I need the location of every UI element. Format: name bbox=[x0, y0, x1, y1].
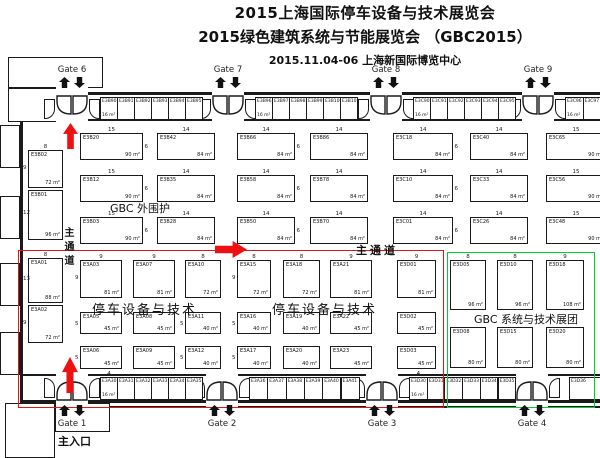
entry-exit-arrows-icon bbox=[369, 405, 395, 416]
booth-id: E3C33 bbox=[473, 177, 489, 183]
booth-id: E3B101 bbox=[342, 99, 359, 104]
label-0: GBC 外围护 bbox=[110, 200, 170, 216]
booth-E3C56: E3C5690 m²15 bbox=[546, 175, 600, 202]
booth-id: E3B90 bbox=[102, 99, 117, 104]
entry-exit-arrows-icon bbox=[519, 405, 545, 416]
booth-height-label: 6 bbox=[455, 186, 459, 192]
booth-width-label: 15 bbox=[547, 211, 600, 217]
red-arrow-right-icon bbox=[215, 241, 247, 258]
gate-label-gate-4: Gate 4 bbox=[518, 419, 546, 429]
booth-width-label: 15 bbox=[81, 169, 142, 175]
booth-id: E3B95 bbox=[187, 99, 202, 104]
booth-area: 72 m² bbox=[45, 180, 60, 186]
booth-E3B98: E3B98 bbox=[289, 97, 307, 120]
gate-doors-icon bbox=[369, 96, 403, 116]
title-line-2: 2015绿色建筑系统与节能展览会 （GBC2015） bbox=[130, 26, 600, 47]
gate-doors-icon bbox=[521, 96, 555, 116]
booth-height-label: 12 bbox=[23, 210, 30, 216]
booth-id: E3C10 bbox=[396, 177, 412, 183]
booth-E3C65: E3C6590 m²15 bbox=[546, 133, 600, 160]
title-line-1: 2015上海国际停车设备与技术展览会 bbox=[130, 2, 600, 23]
booth-E3B35: E3B3584 m²14 bbox=[157, 175, 215, 202]
booth-width-label: 14 bbox=[471, 127, 527, 133]
booth-E3B78: E3B7884 m²14 bbox=[310, 175, 368, 202]
entry-exit-arrows-icon bbox=[59, 405, 85, 416]
entry-exit-arrows-icon bbox=[215, 77, 241, 88]
booth-area: 84 m² bbox=[350, 152, 365, 158]
page-title: 2015上海国际停车设备与技术展览会 2015绿色建筑系统与节能展览会 （GBC… bbox=[130, 2, 600, 68]
booth-width-label: 14 bbox=[394, 127, 452, 133]
entry-exit-arrows-icon bbox=[59, 77, 85, 88]
booth-id: E3B86 bbox=[313, 135, 329, 141]
booth-E3B66: E3B6684 m²146 bbox=[237, 133, 295, 160]
booth-E3B92: E3B92 bbox=[134, 97, 152, 120]
booth-E3C93: E3C93 bbox=[464, 97, 482, 120]
booth-id: E3B28 bbox=[160, 219, 176, 225]
booth-width-label: 14 bbox=[394, 211, 452, 217]
booth-id: E3B58 bbox=[240, 177, 256, 183]
booth-area: 16 m² bbox=[415, 113, 428, 118]
booth-E3B97: E3B97 bbox=[272, 97, 290, 120]
entry-exit-arrows-icon bbox=[209, 405, 235, 416]
booth-id: E3B91 bbox=[119, 99, 134, 104]
booth-height-label: 6 bbox=[297, 144, 301, 150]
entry-exit-arrows-icon bbox=[209, 405, 235, 416]
booth-E3B99: E3B99 bbox=[306, 97, 324, 120]
booth-E3B02: E3B0272 m²89 bbox=[28, 150, 63, 188]
booth-width-label: 14 bbox=[238, 169, 294, 175]
booth-E3B95: E3B95 bbox=[185, 97, 203, 120]
booth-id: E3C40 bbox=[473, 135, 489, 141]
label-6: 主通道 bbox=[60, 227, 75, 269]
entry-exit-arrows-icon bbox=[373, 77, 399, 88]
service-room bbox=[5, 403, 55, 458]
booth-area: 84 m² bbox=[435, 152, 450, 158]
booth-E3B90: E3B9016 m² bbox=[100, 97, 118, 120]
booth-id: E3C01 bbox=[396, 219, 412, 225]
booth-E3C96: E3C9616 m² bbox=[565, 97, 584, 120]
booth-id: E3B98 bbox=[291, 99, 306, 104]
booth-id: E3B94 bbox=[170, 99, 185, 104]
booth-id: E3C18 bbox=[396, 135, 412, 141]
booth-E3B93: E3B93 bbox=[151, 97, 169, 120]
booth-width-label: 14 bbox=[158, 169, 214, 175]
booth-E3C92: E3C92 bbox=[447, 97, 465, 120]
booth-E3B28: E3B2884 m²14 bbox=[157, 217, 215, 244]
booth-E3C26: E3C2684 m²14 bbox=[470, 217, 528, 244]
entry-exit-arrows-icon bbox=[525, 77, 551, 88]
booth-width-label: 14 bbox=[238, 127, 294, 133]
booth-width-label: 8 bbox=[29, 144, 62, 150]
booth-E3B101: E3B101 bbox=[340, 97, 358, 120]
booth-id: E3C95 bbox=[500, 99, 515, 104]
booth-height-label: 6 bbox=[145, 228, 149, 234]
booth-id: E3B78 bbox=[313, 177, 329, 183]
booth-id: E3B42 bbox=[160, 135, 176, 141]
entry-exit-arrows-icon bbox=[519, 405, 545, 416]
booth-id: E3C91 bbox=[432, 99, 447, 104]
wall-segment bbox=[20, 92, 600, 95]
booth-width-label: 14 bbox=[311, 169, 367, 175]
booth-area: 90 m² bbox=[125, 152, 140, 158]
booth-area: 84 m² bbox=[277, 236, 292, 242]
booth-id: E3B93 bbox=[153, 99, 168, 104]
gate-doors-icon bbox=[365, 380, 399, 400]
label-4: 展团 bbox=[556, 311, 578, 327]
booth-area: 90 m² bbox=[588, 236, 600, 242]
booth-id: E3B02 bbox=[31, 152, 47, 158]
booth-area: 16 m² bbox=[567, 113, 580, 118]
booth-area: 84 m² bbox=[350, 194, 365, 200]
booth-width-label: 14 bbox=[311, 127, 367, 133]
gate-label-gate-2: Gate 2 bbox=[208, 419, 236, 429]
booth-height-label: 6 bbox=[145, 144, 149, 150]
service-room bbox=[8, 57, 103, 88]
booth-width-label: 14 bbox=[311, 211, 367, 217]
booth-id: E3B12 bbox=[83, 177, 99, 183]
booth-area: 84 m² bbox=[277, 194, 292, 200]
booth-area: 90 m² bbox=[588, 152, 600, 158]
booth-area: 84 m² bbox=[435, 194, 450, 200]
gate-doors-icon bbox=[207, 382, 237, 400]
entry-exit-arrows-icon bbox=[215, 77, 241, 88]
booth-E3B70: E3B7084 m²14 bbox=[310, 217, 368, 244]
booth-E3C97: E3C97 bbox=[583, 97, 600, 120]
booth-id: E3C96 bbox=[567, 99, 582, 104]
service-room bbox=[0, 125, 20, 168]
booth-E3C90: E3C9016 m² bbox=[413, 97, 431, 120]
booth-E3B100: E3B100 bbox=[323, 97, 341, 120]
booth-id: E3C92 bbox=[449, 99, 464, 104]
booth-E3B94: E3B94 bbox=[168, 97, 186, 120]
booth-E3B96: E3B9616 m² bbox=[255, 97, 273, 120]
entry-exit-arrows-icon bbox=[369, 405, 395, 416]
booth-area: 84 m² bbox=[435, 236, 450, 242]
booth-E3B01: E3B0196 m²12 bbox=[28, 190, 63, 240]
gate-doors-icon bbox=[211, 96, 245, 116]
booth-E3C40: E3C4084 m²14 bbox=[470, 133, 528, 160]
gate-doors-icon bbox=[517, 382, 547, 400]
booth-area: 84 m² bbox=[510, 194, 525, 200]
booth-area: 84 m² bbox=[510, 236, 525, 242]
service-room bbox=[0, 332, 20, 375]
booth-E3B91: E3B91 bbox=[117, 97, 135, 120]
booth-id: E3C97 bbox=[585, 99, 600, 104]
gate-label-gate-3: Gate 3 bbox=[368, 419, 396, 429]
booth-area: 96 m² bbox=[45, 232, 60, 238]
booth-width-label: 14 bbox=[394, 169, 452, 175]
booth-id: E3C56 bbox=[549, 177, 565, 183]
booth-area: 16 m² bbox=[257, 113, 270, 118]
booth-area: 84 m² bbox=[197, 194, 212, 200]
booth-id: E3C48 bbox=[549, 219, 565, 225]
booth-id: E3B35 bbox=[160, 177, 176, 183]
booth-id: E3B20 bbox=[83, 135, 99, 141]
booth-height-label: 9 bbox=[23, 165, 27, 171]
booth-width-label: 14 bbox=[471, 169, 527, 175]
gate-doors-icon bbox=[57, 96, 87, 114]
booth-height-label: 6 bbox=[455, 228, 459, 234]
booth-E3C33: E3C3384 m²14 bbox=[470, 175, 528, 202]
booth-E3B50: E3B5084 m²146 bbox=[237, 217, 295, 244]
service-room bbox=[0, 196, 20, 239]
booth-id: E3B92 bbox=[136, 99, 151, 104]
booth-E3C91: E3C91 bbox=[430, 97, 448, 120]
booth-E3B03: E3B0390 m²156 bbox=[80, 217, 143, 244]
label-5: 主通道 bbox=[356, 242, 398, 258]
entry-exit-arrows-icon bbox=[59, 77, 85, 88]
booth-id: E3B99 bbox=[308, 99, 323, 104]
booth-id: E3B50 bbox=[240, 219, 256, 225]
gate-doors-icon bbox=[55, 96, 89, 116]
label-2: 停车设备与技术 bbox=[272, 299, 377, 318]
red-arrow-up-icon bbox=[63, 123, 78, 149]
booth-E3B86: E3B8684 m²14 bbox=[310, 133, 368, 160]
booth-id: E3C93 bbox=[466, 99, 481, 104]
booth-E3B58: E3B5884 m²146 bbox=[237, 175, 295, 202]
label-1: 停车设备与技术 bbox=[92, 299, 197, 318]
gate-doors-icon bbox=[523, 96, 553, 114]
booth-width-label: 15 bbox=[547, 169, 600, 175]
booth-E3C10: E3C1084 m²146 bbox=[393, 175, 453, 202]
booth-E3C94: E3C94 bbox=[481, 97, 499, 120]
booth-height-label: 6 bbox=[455, 144, 459, 150]
booth-height-label: 6 bbox=[297, 186, 301, 192]
gate-doors-icon bbox=[371, 96, 401, 114]
gate-label-gate-6: Gate 6 bbox=[58, 65, 86, 75]
service-room bbox=[0, 263, 20, 306]
booth-area: 84 m² bbox=[277, 152, 292, 158]
booth-id: E3B03 bbox=[83, 219, 99, 225]
booth-area: 84 m² bbox=[510, 152, 525, 158]
red-arrow-up-icon bbox=[62, 357, 78, 393]
main-entrance-label: 主入口 bbox=[58, 433, 91, 449]
title-line-3: 2015.11.04-06 上海新国际博览中心 bbox=[130, 52, 600, 68]
entry-exit-arrows-icon bbox=[59, 405, 85, 416]
booth-E3B42: E3B4284 m²14 bbox=[157, 133, 215, 160]
booth-E3B12: E3B1290 m²156 bbox=[80, 175, 143, 202]
booth-E3C95: E3C95 bbox=[498, 97, 516, 120]
entry-exit-arrows-icon bbox=[525, 77, 551, 88]
booth-id: E3B01 bbox=[31, 192, 47, 198]
booth-width-label: 14 bbox=[158, 127, 214, 133]
booth-E3B20: E3B2090 m²156 bbox=[80, 133, 143, 160]
booth-id: E3C94 bbox=[483, 99, 498, 104]
booth-id: E3B66 bbox=[240, 135, 256, 141]
door-leaf-icon bbox=[89, 99, 100, 119]
booth-area: 90 m² bbox=[588, 194, 600, 200]
gate-doors-icon bbox=[515, 380, 549, 400]
booth-E3C48: E3C4890 m²15 bbox=[546, 217, 600, 244]
floor-plan: Gate 6 Gate 7 Gate 8 Gate 9 Gate 1主入口 Ga… bbox=[0, 0, 600, 458]
gate-label-gate-1: Gate 1 bbox=[58, 419, 86, 429]
booth-id: E3C65 bbox=[549, 135, 565, 141]
gate-doors-icon bbox=[205, 380, 239, 400]
booth-E3C18: E3C1884 m²146 bbox=[393, 133, 453, 160]
booth-width-label: 15 bbox=[81, 127, 142, 133]
gate-doors-icon bbox=[367, 382, 397, 400]
booth-area: 16 m² bbox=[102, 113, 115, 118]
entry-exit-arrows-icon bbox=[373, 77, 399, 88]
label-3: GBC 系统与技术 bbox=[474, 311, 556, 327]
booth-E3C01: E3C0184 m²146 bbox=[393, 217, 453, 244]
booth-area: 90 m² bbox=[125, 236, 140, 242]
booth-area: 84 m² bbox=[197, 152, 212, 158]
booth-height-label: 6 bbox=[145, 186, 149, 192]
booth-width-label: 14 bbox=[238, 211, 294, 217]
door-leaf-icon bbox=[358, 99, 369, 119]
booth-width-label: 14 bbox=[471, 211, 527, 217]
booth-id: E3C90 bbox=[415, 99, 430, 104]
booth-area: 84 m² bbox=[197, 236, 212, 242]
gate-doors-icon bbox=[213, 96, 243, 114]
booth-id: E3C26 bbox=[473, 219, 489, 225]
booth-id: E3B70 bbox=[313, 219, 329, 225]
booth-id: E3B96 bbox=[257, 99, 272, 104]
booth-width-label: 15 bbox=[547, 127, 600, 133]
booth-height-label: 6 bbox=[297, 228, 301, 234]
booth-id: E3B97 bbox=[274, 99, 289, 104]
